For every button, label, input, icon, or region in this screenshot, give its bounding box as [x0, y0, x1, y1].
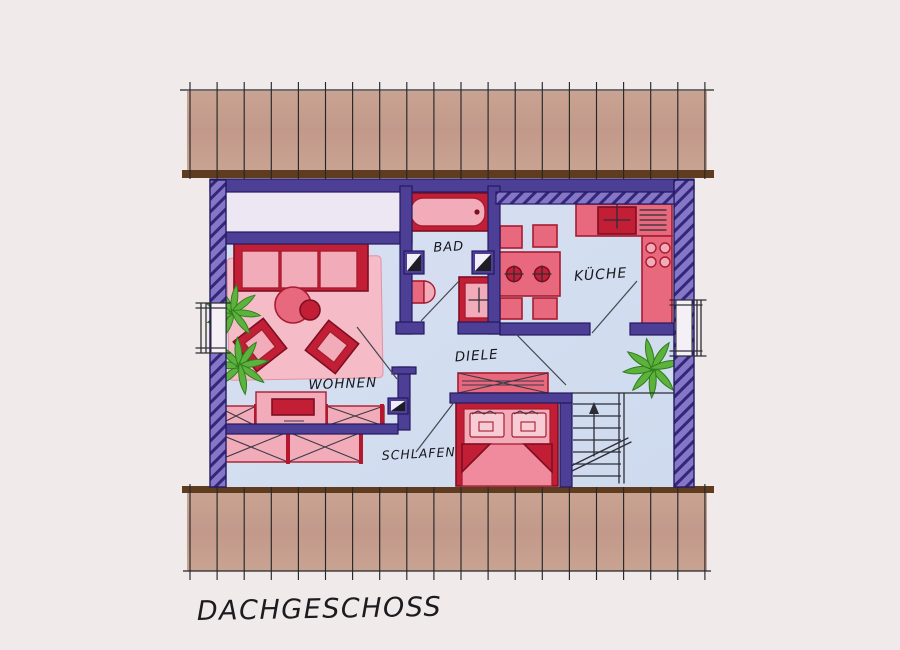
dining-chair: [533, 298, 557, 319]
wall-bed-head: [450, 393, 572, 403]
duct-shaft-icon: [388, 398, 408, 414]
roof-eave-line-top: [182, 170, 714, 178]
wardrobe-row: [213, 430, 363, 464]
floor-title: DACHGESCHOSS: [197, 592, 443, 627]
window-left: [196, 303, 230, 353]
bathtub: [405, 193, 491, 231]
duct-shaft-icon: [472, 251, 494, 274]
pillow-right: [512, 413, 546, 437]
wall-kitchen-bottom-left: [500, 323, 590, 335]
roof-eave-line-bottom: [182, 486, 714, 493]
scanned-floor-plan-page: BAD KÜCHE DIELE WOHNEN SCHLAFEN DACHGESC…: [0, 0, 900, 650]
attic-knee-storage-strip: [226, 192, 400, 232]
pillow-left: [470, 413, 504, 437]
wall-bad-bottom: [458, 322, 500, 334]
drain: [474, 209, 479, 214]
room-label-bad: BAD: [433, 239, 465, 256]
room-label-diele: DIELE: [454, 346, 499, 365]
tv: [272, 399, 314, 415]
roof-hatch-bottom: [182, 484, 714, 580]
sofa: [234, 239, 368, 291]
double-bed: [456, 401, 558, 486]
tv-lowboard: [256, 392, 326, 426]
wall-kitchen-bottom-right: [630, 323, 674, 335]
wall-knee-kitchen: [496, 192, 674, 204]
wall-bedroom-right: [560, 403, 572, 487]
wall-knee-living: [214, 232, 412, 244]
coffee-table-small: [300, 300, 320, 320]
floor-plan-svg: BAD KÜCHE DIELE WOHNEN SCHLAFEN DACHGESC…: [0, 0, 900, 650]
wall-top: [210, 179, 694, 192]
room-label-wohnen: WOHNEN: [308, 375, 377, 393]
dining-chair: [500, 226, 522, 248]
duct-shaft-icon: [404, 251, 424, 274]
wall-bedroom-top: [214, 424, 398, 434]
dining-chair: [500, 298, 522, 319]
hall-closet: [458, 373, 548, 393]
dining-chair: [533, 225, 557, 247]
roof-hatch-top: [180, 82, 714, 179]
